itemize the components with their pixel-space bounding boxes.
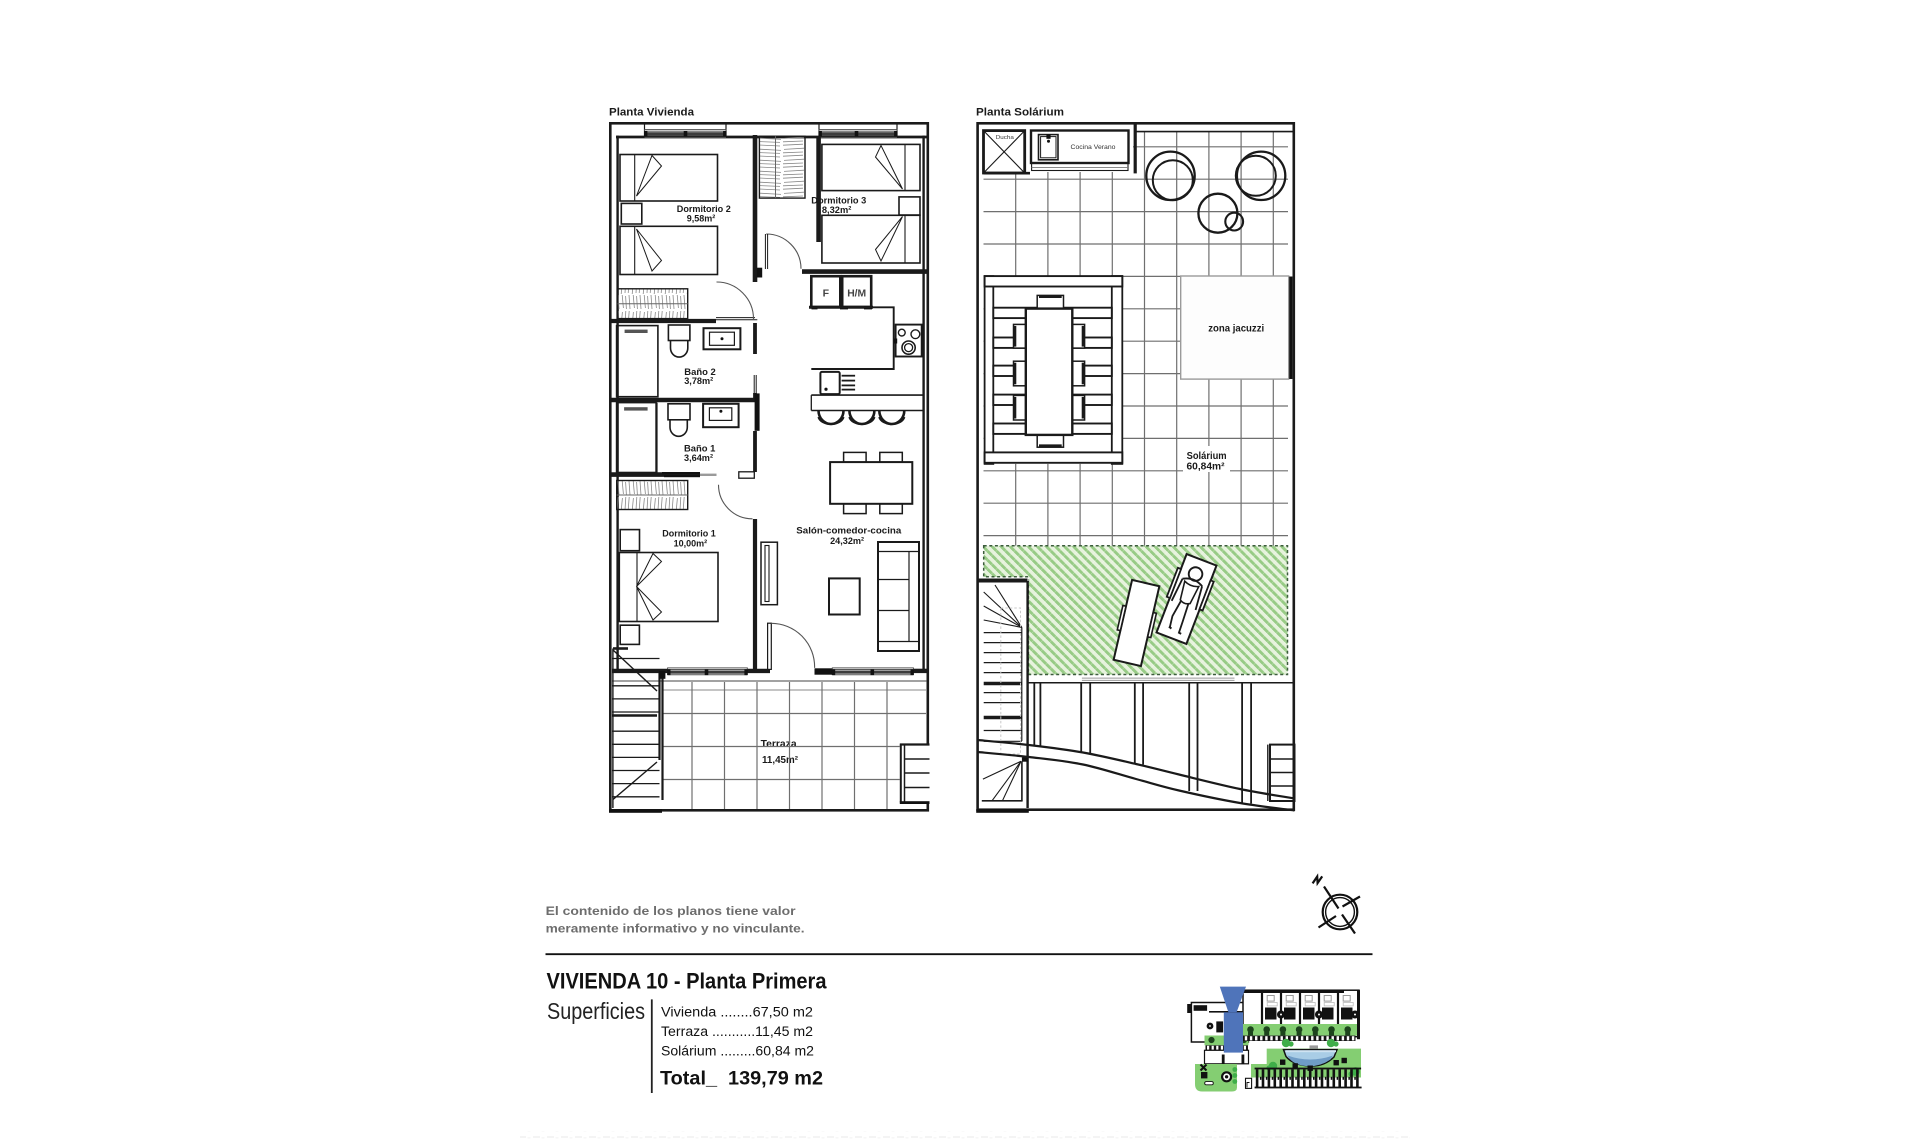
svg-text:Cocina Verano: Cocina Verano — [1071, 145, 1117, 151]
svg-text:VIVIENDA 10 - Planta Primera: VIVIENDA 10 - Planta Primera — [547, 969, 827, 994]
svg-text:Solárium .........60,84 m2: Solárium .........60,84 m2 — [661, 1044, 814, 1059]
svg-text:Total_ 139,79 m2: Total_ 139,79 m2 — [660, 1069, 823, 1090]
svg-text:11,45m²: 11,45m² — [762, 754, 798, 766]
svg-text:H/M: H/M — [847, 288, 866, 300]
svg-text:Vivienda ........67,50 m2: Vivienda ........67,50 m2 — [661, 1005, 813, 1020]
svg-text:Planta Solárium: Planta Solárium — [976, 107, 1064, 119]
svg-text:Superficies: Superficies — [547, 998, 645, 1024]
svg-text:10,00m²: 10,00m² — [674, 538, 708, 549]
svg-text:9,58m²: 9,58m² — [687, 213, 716, 224]
svg-text:3,64m²: 3,64m² — [684, 453, 713, 464]
svg-text:meramente informativo y no vin: meramente informativo y no vinculante. — [546, 922, 805, 936]
svg-text:Terraza ...........11,45 m2: Terraza ...........11,45 m2 — [661, 1024, 813, 1039]
svg-text:3,78m²: 3,78m² — [684, 376, 713, 387]
svg-text:zona jacuzzi: zona jacuzzi — [1208, 323, 1264, 335]
svg-text:F: F — [823, 288, 830, 300]
svg-text:Ducha: Ducha — [996, 135, 1014, 141]
svg-text:Planta Vivienda: Planta Vivienda — [609, 107, 695, 119]
svg-text:60,84m²: 60,84m² — [1187, 461, 1225, 473]
svg-text:El contenido de los planos tie: El contenido de los planos tiene valor — [546, 904, 796, 918]
svg-text:Terraza: Terraza — [761, 738, 797, 750]
svg-text:8,32m²: 8,32m² — [822, 205, 852, 216]
svg-text:24,32m²: 24,32m² — [830, 536, 864, 547]
